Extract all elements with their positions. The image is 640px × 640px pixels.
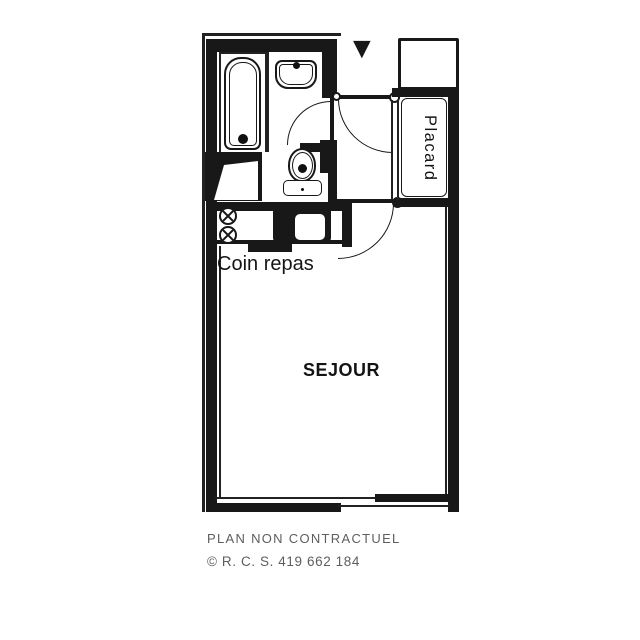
bathroom-door-swing-arc (287, 101, 331, 145)
coin-repas-label: Coin repas (217, 253, 314, 276)
wall-wc-right (328, 152, 337, 208)
entry-door-swing-arc (338, 99, 393, 153)
window-sliding-panel-right (375, 494, 450, 502)
landing-box (398, 38, 459, 90)
wall-right-inner-line (445, 207, 447, 499)
wall-left (206, 39, 217, 512)
window-sliding-panel-left (211, 503, 341, 512)
sejour-label: SEJOUR (303, 360, 380, 381)
washbasin-tap (293, 62, 300, 69)
kitchen-sink-basin (295, 214, 325, 240)
door-hinge-post (332, 92, 341, 101)
bathtub-inner (229, 62, 257, 146)
toilet-flush-dot (298, 164, 307, 173)
entrance-arrow-icon: ▼ (347, 34, 377, 64)
wall-top (206, 39, 337, 52)
window-track-line-right (338, 505, 449, 507)
wall-bathroom-right (322, 39, 337, 98)
wall-left-inner-line (219, 246, 221, 498)
sejour-door-swing-arc (338, 203, 394, 259)
placard-label: Placard (409, 106, 439, 190)
wall-placard-bottom (394, 198, 458, 207)
tub-alcove-line-left (219, 52, 221, 152)
stove-burner-icon (219, 226, 237, 244)
kitchen-counter-tab (248, 243, 292, 252)
plan-disclaimer: PLAN NON CONTRACTUEL (207, 531, 401, 546)
wall-placard-top (392, 88, 458, 97)
wall-outer-left-line (202, 33, 205, 512)
wall-outer-top-line (202, 33, 341, 36)
placard-sliding-door-line (397, 100, 399, 200)
toilet-base-dot (301, 188, 304, 191)
wall-right (448, 88, 459, 512)
rcs-registration: © R. C. S. 419 662 184 (207, 554, 360, 569)
floor-plan: ▼ Placard Coin repas SEJOUR PLAN NON CON… (0, 0, 640, 640)
placard-sliding-door-line (391, 100, 393, 200)
stove-burner-icon (219, 207, 237, 225)
tub-alcove-line-top (219, 52, 265, 54)
wall-bathroom-partition (265, 52, 269, 152)
bathtub-drain (238, 134, 248, 144)
window-track-line-left (215, 497, 377, 499)
